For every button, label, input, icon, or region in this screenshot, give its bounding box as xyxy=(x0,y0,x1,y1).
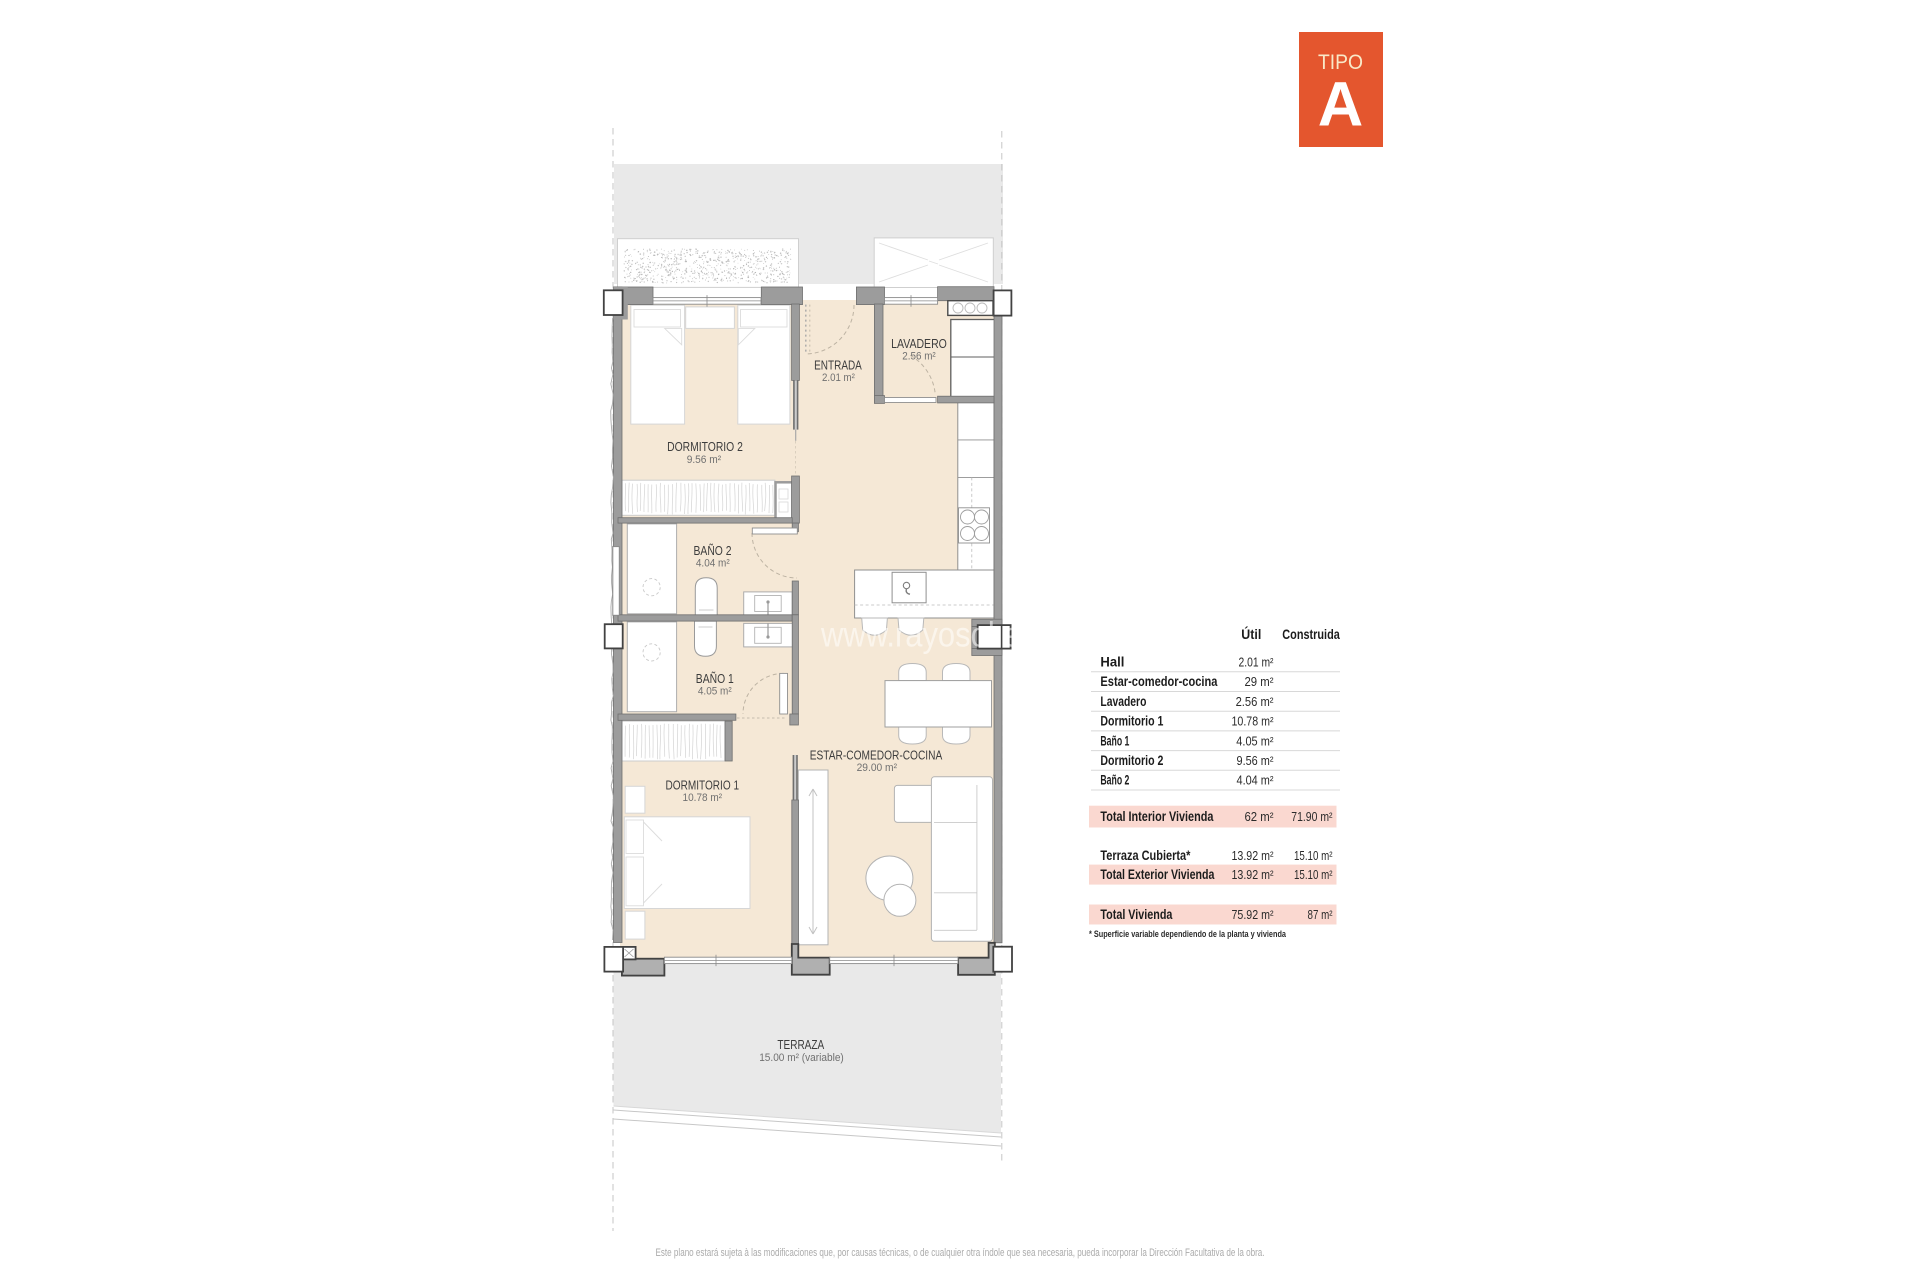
svg-text:Dormitorio 1: Dormitorio 1 xyxy=(1100,714,1163,729)
svg-text:4.04 m²: 4.04 m² xyxy=(696,558,730,570)
svg-text:ENTRADA: ENTRADA xyxy=(814,359,862,373)
svg-text:71.90 m²: 71.90 m² xyxy=(1291,809,1333,824)
svg-text:2.01 m²: 2.01 m² xyxy=(1239,655,1275,670)
svg-text:Total Interior Vivienda: Total Interior Vivienda xyxy=(1100,809,1213,824)
svg-text:Terraza Cubierta*: Terraza Cubierta* xyxy=(1100,848,1191,863)
svg-text:9.56 m²: 9.56 m² xyxy=(687,454,722,466)
svg-text:Total Exterior Vivienda: Total Exterior Vivienda xyxy=(1100,867,1214,882)
svg-text:75.92 m²: 75.92 m² xyxy=(1232,907,1275,922)
svg-text:BAÑO 1: BAÑO 1 xyxy=(696,672,734,686)
svg-text:Estar-comedor-cocina: Estar-comedor-cocina xyxy=(1100,674,1217,689)
svg-text:ESTAR-COMEDOR-COCINA: ESTAR-COMEDOR-COCINA xyxy=(810,749,943,763)
svg-text:62 m²: 62 m² xyxy=(1245,809,1275,824)
svg-text:Baño 2: Baño 2 xyxy=(1100,773,1129,788)
svg-text:13.92 m²: 13.92 m² xyxy=(1232,848,1275,863)
svg-text:29.00 m²: 29.00 m² xyxy=(857,762,898,774)
svg-text:Este plano estará sujeta à las: Este plano estará sujeta à las modificac… xyxy=(656,1247,1265,1259)
svg-text:13.92 m²: 13.92 m² xyxy=(1232,867,1275,882)
svg-text:15.10 m²: 15.10 m² xyxy=(1294,867,1333,882)
svg-text:2.01 m²: 2.01 m² xyxy=(822,372,855,384)
svg-text:DORMITORIO 2: DORMITORIO 2 xyxy=(667,440,743,454)
svg-text:Útil: Útil xyxy=(1241,627,1261,642)
svg-text:Total Vivienda: Total Vivienda xyxy=(1100,907,1172,922)
svg-text:LAVADERO: LAVADERO xyxy=(891,337,947,351)
svg-text:10.78 m²: 10.78 m² xyxy=(1232,714,1275,729)
svg-text:9.56 m²: 9.56 m² xyxy=(1237,753,1275,768)
svg-text:Construida: Construida xyxy=(1282,627,1340,642)
svg-text:A: A xyxy=(1318,70,1364,140)
svg-text:Baño 1: Baño 1 xyxy=(1100,733,1129,748)
svg-text:www.rayosol.es: www.rayosol.es xyxy=(820,615,1036,655)
svg-text:2.56 m²: 2.56 m² xyxy=(1236,694,1274,709)
svg-text:* Superficie variable dependie: * Superficie variable dependiendo de la … xyxy=(1089,929,1287,939)
svg-text:15.10 m²: 15.10 m² xyxy=(1294,848,1333,863)
svg-text:TERRAZA: TERRAZA xyxy=(777,1038,824,1052)
svg-text:4.05 m²: 4.05 m² xyxy=(1236,733,1274,748)
svg-text:BAÑO 2: BAÑO 2 xyxy=(694,544,732,558)
svg-text:4.05 m²: 4.05 m² xyxy=(698,686,732,698)
svg-text:Lavadero: Lavadero xyxy=(1100,694,1146,709)
svg-text:87 m²: 87 m² xyxy=(1308,907,1334,922)
svg-text:10.78 m²: 10.78 m² xyxy=(683,792,723,804)
svg-text:29 m²: 29 m² xyxy=(1245,674,1275,689)
svg-text:2.56 m²: 2.56 m² xyxy=(902,351,936,363)
svg-text:Dormitorio 2: Dormitorio 2 xyxy=(1100,753,1163,768)
svg-text:DORMITORIO 1: DORMITORIO 1 xyxy=(666,779,740,793)
svg-text:4.04 m²: 4.04 m² xyxy=(1237,773,1275,788)
svg-text:Hall: Hall xyxy=(1100,655,1124,670)
svg-text:15.00 m² (variable): 15.00 m² (variable) xyxy=(759,1052,844,1064)
